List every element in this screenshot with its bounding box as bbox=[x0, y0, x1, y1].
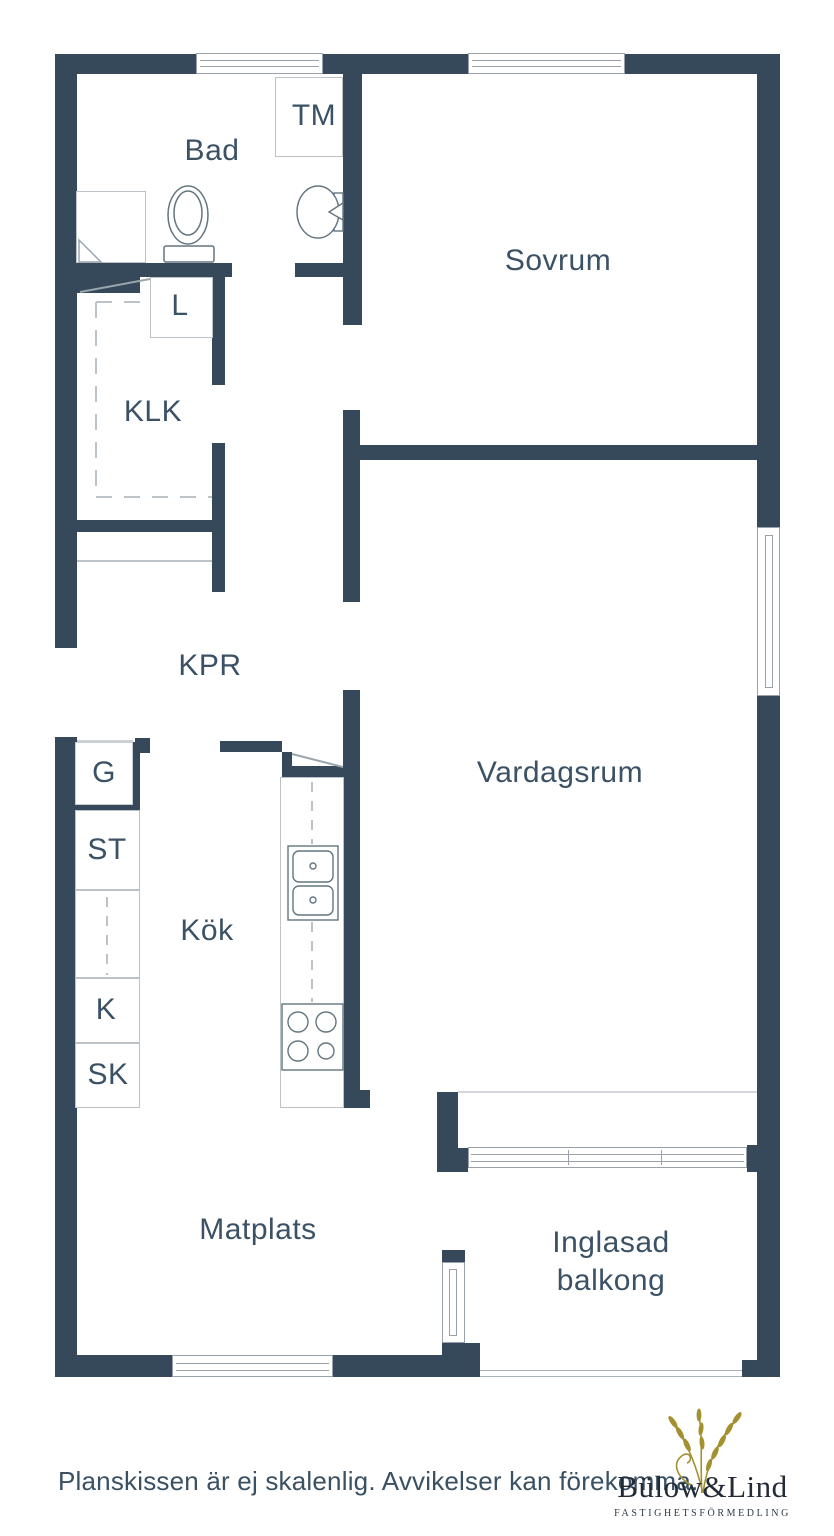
room-label-hallway: KPR bbox=[178, 649, 241, 683]
room-label-balcony: Inglasad balkong bbox=[552, 1224, 669, 1300]
toilet-icon bbox=[164, 186, 214, 262]
brand-name: Bülow&Lind bbox=[600, 1469, 805, 1505]
wall-klk-bottom bbox=[55, 520, 225, 532]
wall-bad-sovrum-divider bbox=[343, 54, 362, 325]
vardagsrum-window bbox=[757, 527, 780, 696]
wall-right-lower bbox=[757, 694, 780, 1360]
brand-logo: Bülow&Lind FASTIGHETSFÖRMEDLING bbox=[600, 1405, 805, 1519]
wall-left-lower bbox=[55, 737, 77, 1377]
wall-left-upper bbox=[55, 54, 77, 648]
l-closet-block bbox=[55, 277, 140, 293]
room-label-bathroom: Bad bbox=[185, 134, 240, 168]
balcony-window-band bbox=[468, 1147, 747, 1168]
balcony-corner-foot bbox=[437, 1148, 468, 1172]
kitchen-bench-box bbox=[75, 890, 140, 978]
wall-kitchen-vardagsrum bbox=[343, 690, 360, 1090]
wall-kitchen-foot bbox=[343, 1090, 370, 1108]
room-label-living-room: Vardagsrum bbox=[477, 756, 643, 790]
room-label-bedroom: Sovrum bbox=[505, 244, 611, 278]
balcony-glazing-bottom bbox=[480, 1370, 742, 1377]
label-fridge: G bbox=[92, 756, 116, 790]
floor-plan: Bad TM Sovrum L KLK KPR G ST Kök K SK Va… bbox=[0, 0, 834, 1536]
wall-l-right-upper bbox=[212, 277, 225, 385]
brand-tagline: FASTIGHETSFÖRMEDLING bbox=[600, 1508, 805, 1519]
label-st-cabinet: ST bbox=[87, 833, 126, 867]
balcony-corner-vert bbox=[437, 1092, 458, 1148]
balcony-door-sill-block bbox=[442, 1343, 480, 1377]
room-label-walk-in-closet: KLK bbox=[124, 395, 182, 429]
room-label-dining: Matplats bbox=[199, 1213, 316, 1247]
sovrum-window bbox=[468, 53, 625, 74]
wall-bad-bottom-left bbox=[55, 263, 232, 277]
room-label-linen-closet: L bbox=[171, 289, 188, 323]
room-label-kitchen: Kök bbox=[180, 914, 233, 948]
fridge-right-wall bbox=[133, 742, 140, 805]
wall-sovrum-vardagsrum bbox=[360, 445, 757, 460]
kitchen-counter-box bbox=[280, 777, 344, 1108]
wall-bottom-mid bbox=[333, 1355, 442, 1377]
wall-right-upper bbox=[757, 54, 780, 527]
kitchen-door-jamb-h bbox=[282, 766, 343, 777]
wall-klk-right-lower bbox=[212, 443, 225, 592]
room-label-washing-machine: TM bbox=[292, 99, 336, 133]
kitchen-top-bar bbox=[220, 741, 282, 752]
balcony-door-cap bbox=[442, 1250, 465, 1262]
wall-bottom-right-corner bbox=[742, 1360, 780, 1377]
shower-box bbox=[76, 191, 146, 263]
bad-window bbox=[196, 53, 323, 74]
matplats-window bbox=[172, 1355, 333, 1377]
balcony-door bbox=[442, 1262, 465, 1343]
wall-bad-bottom-right bbox=[295, 263, 343, 277]
wall-bottom-left bbox=[55, 1355, 172, 1377]
balcony-label-line1: Inglasad bbox=[552, 1224, 669, 1262]
balcony-label-line2: balkong bbox=[552, 1262, 669, 1300]
label-sk-cabinet: SK bbox=[87, 1058, 128, 1092]
window-band-right-block bbox=[747, 1145, 780, 1172]
wall-kpr-vardagsrum-upper bbox=[343, 410, 360, 602]
bathroom-sink-icon bbox=[297, 186, 343, 238]
label-k-cabinet: K bbox=[96, 993, 117, 1027]
